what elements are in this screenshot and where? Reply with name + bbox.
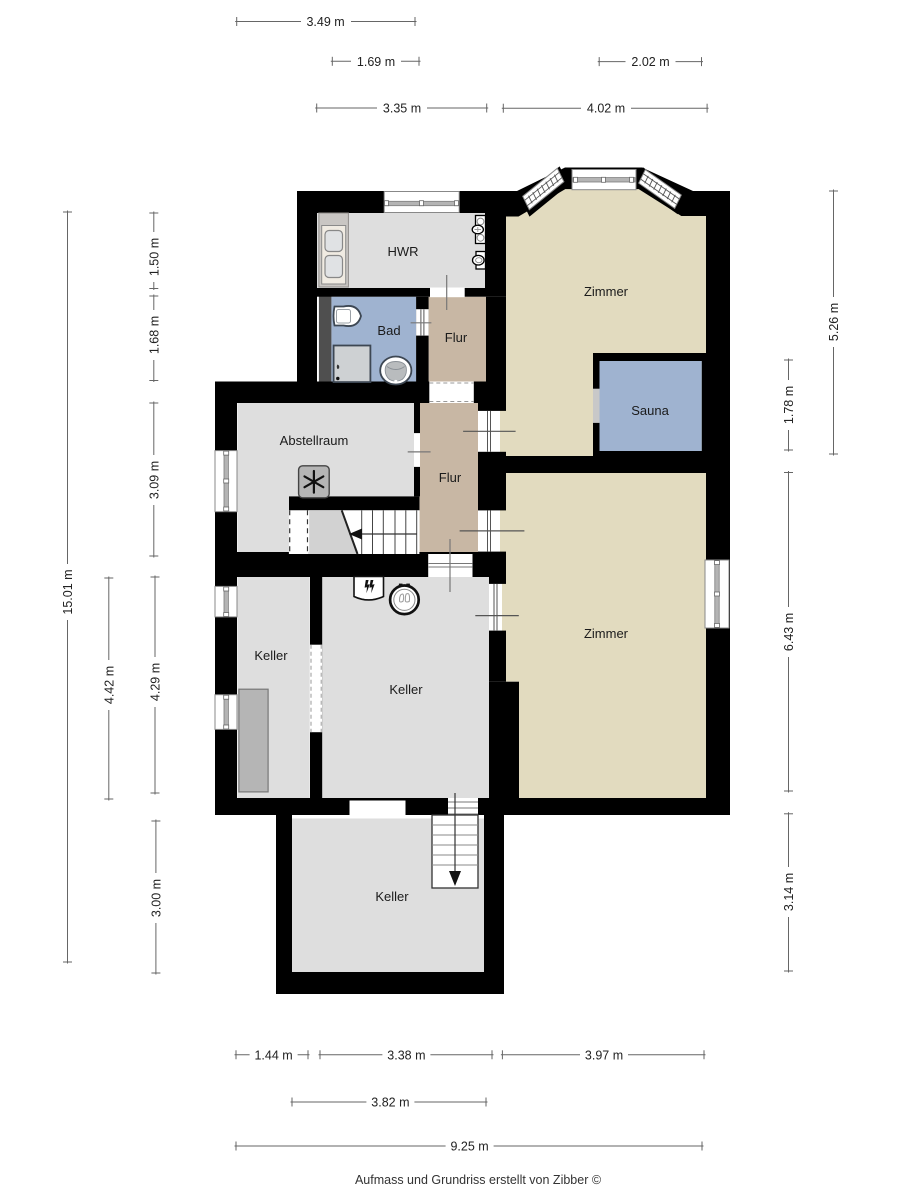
svg-text:1.69 m: 1.69 m [357,55,395,69]
svg-text:Zimmer: Zimmer [584,284,629,299]
svg-text:2.02 m: 2.02 m [631,55,669,69]
svg-text:Bad: Bad [377,323,400,338]
svg-text:Keller: Keller [389,682,423,697]
svg-text:Flur: Flur [439,470,462,485]
svg-text:3.35 m: 3.35 m [383,102,421,116]
svg-text:15.01 m: 15.01 m [61,569,75,614]
svg-text:1.68 m: 1.68 m [147,316,161,354]
svg-text:Flur: Flur [445,330,468,345]
svg-text:Zimmer: Zimmer [584,626,629,641]
svg-text:4.42 m: 4.42 m [102,666,116,704]
svg-text:6.43 m: 6.43 m [782,613,796,651]
svg-text:HWR: HWR [387,244,418,259]
svg-text:9.25 m: 9.25 m [450,1140,488,1154]
svg-text:1.78 m: 1.78 m [782,386,796,424]
svg-text:5.26 m: 5.26 m [827,303,841,341]
svg-text:3.97 m: 3.97 m [585,1048,623,1062]
svg-text:3.00 m: 3.00 m [149,879,163,917]
svg-text:3.82 m: 3.82 m [371,1096,409,1110]
svg-text:1.44 m: 1.44 m [254,1048,292,1062]
svg-text:1.50 m: 1.50 m [147,238,161,276]
svg-text:4.29 m: 4.29 m [149,663,163,701]
svg-text:4.02 m: 4.02 m [587,102,625,116]
svg-text:3.09 m: 3.09 m [147,461,161,499]
svg-text:3.14 m: 3.14 m [782,873,796,911]
svg-text:Aufmass und Grundriss erstellt: Aufmass und Grundriss erstellt von Zibbe… [355,1173,602,1187]
svg-text:Sauna: Sauna [631,403,669,418]
svg-text:Keller: Keller [254,648,288,663]
svg-text:3.49 m: 3.49 m [306,15,344,29]
svg-text:3.38 m: 3.38 m [387,1048,425,1062]
svg-text:Abstellraum: Abstellraum [280,433,349,448]
svg-text:Keller: Keller [375,889,409,904]
